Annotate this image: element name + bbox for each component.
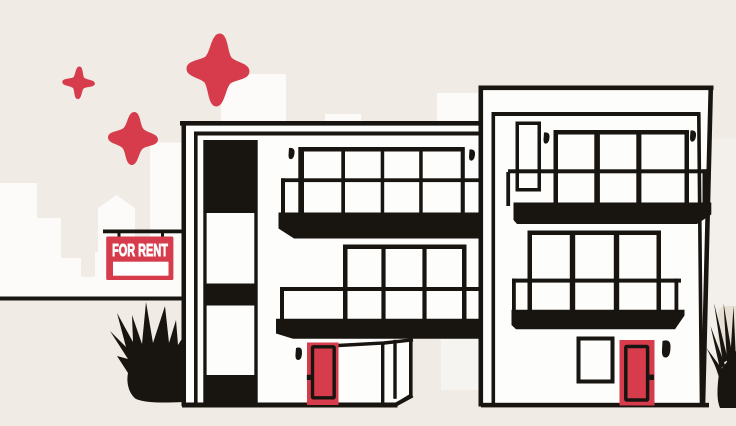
svg-text:FOR RENT: FOR RENT — [112, 242, 168, 261]
